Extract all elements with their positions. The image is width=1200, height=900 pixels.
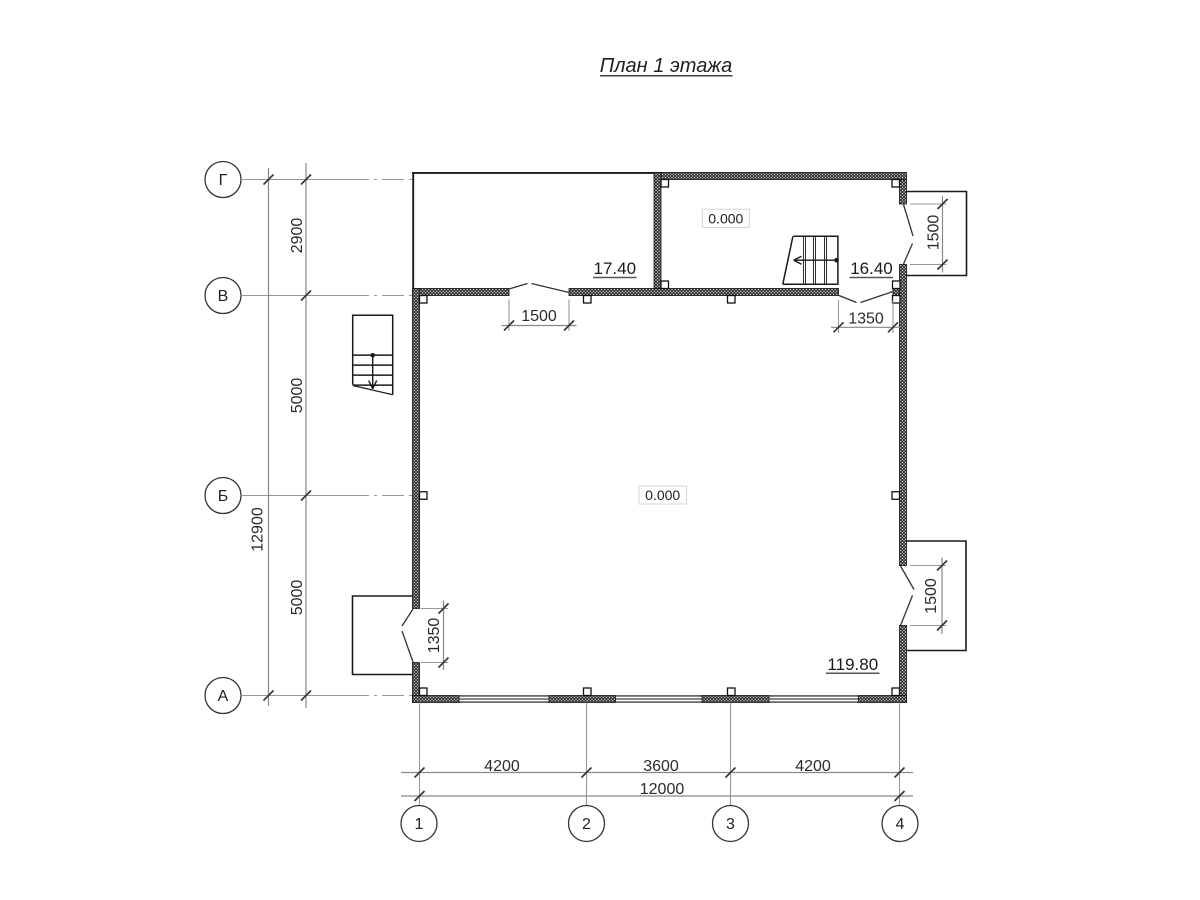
svg-text:1: 1 bbox=[415, 816, 424, 833]
svg-text:1500: 1500 bbox=[923, 578, 940, 614]
svg-text:1350: 1350 bbox=[848, 311, 884, 328]
svg-text:12900: 12900 bbox=[250, 507, 267, 552]
svg-text:2900: 2900 bbox=[289, 218, 306, 254]
svg-text:Б: Б bbox=[218, 488, 229, 505]
svg-text:4200: 4200 bbox=[484, 758, 520, 775]
svg-text:3: 3 bbox=[726, 816, 735, 833]
svg-text:3600: 3600 bbox=[643, 758, 679, 775]
svg-text:А: А bbox=[218, 688, 229, 705]
svg-text:119.80: 119.80 bbox=[827, 655, 878, 674]
svg-text:План 1 этажа: План 1 этажа bbox=[600, 55, 732, 77]
svg-text:Г: Г bbox=[219, 172, 228, 189]
svg-text:В: В bbox=[218, 288, 229, 305]
svg-text:5000: 5000 bbox=[289, 378, 306, 414]
svg-text:1500: 1500 bbox=[521, 308, 557, 325]
svg-text:4: 4 bbox=[896, 816, 905, 833]
svg-text:0.000: 0.000 bbox=[645, 487, 680, 503]
svg-text:1350: 1350 bbox=[426, 618, 443, 654]
svg-text:1500: 1500 bbox=[926, 215, 943, 251]
svg-text:4200: 4200 bbox=[795, 758, 831, 775]
svg-text:2: 2 bbox=[582, 816, 591, 833]
svg-text:12000: 12000 bbox=[640, 781, 685, 798]
svg-text:17.40: 17.40 bbox=[594, 259, 637, 278]
svg-text:16.40: 16.40 bbox=[850, 259, 893, 278]
svg-text:0.000: 0.000 bbox=[708, 210, 743, 226]
svg-text:5000: 5000 bbox=[289, 580, 306, 616]
